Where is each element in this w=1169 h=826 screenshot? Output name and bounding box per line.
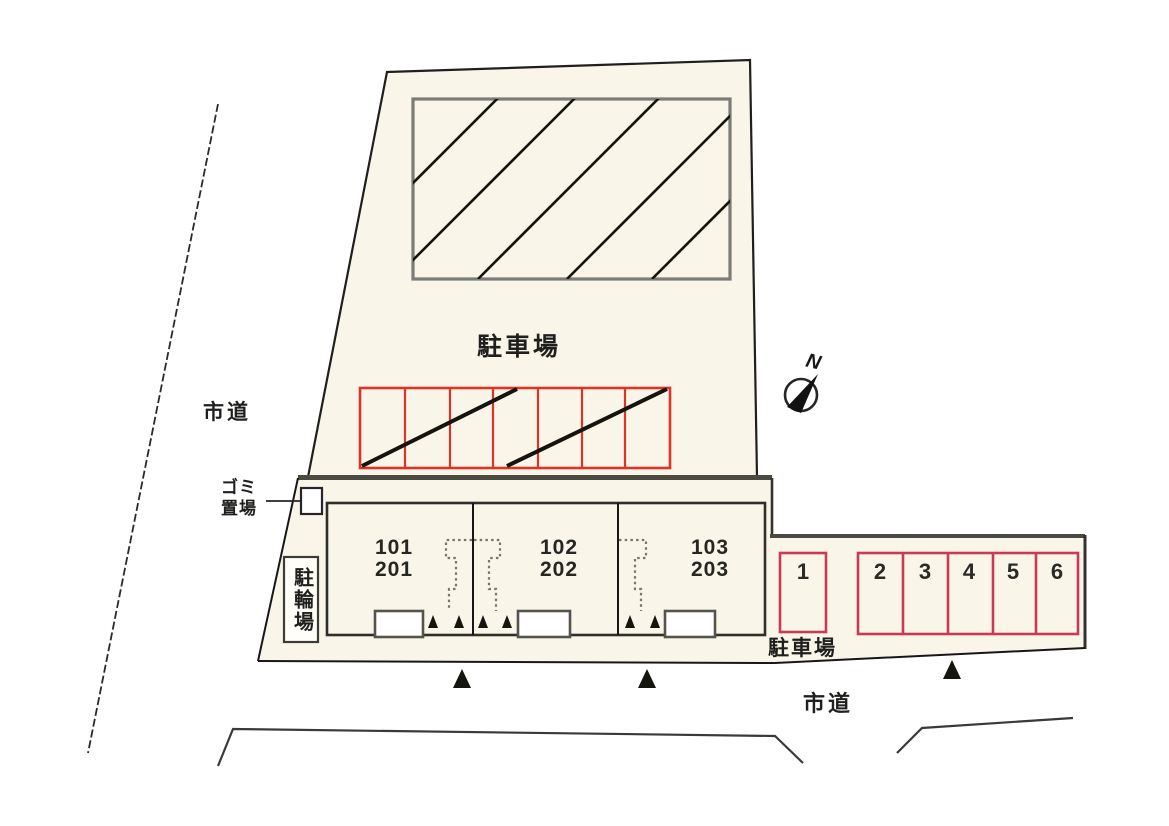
unit-201: 201 bbox=[375, 558, 413, 581]
unit-102: 102 bbox=[540, 536, 578, 559]
bottom-road-line-right bbox=[897, 718, 1073, 753]
north-compass-icon bbox=[785, 374, 818, 413]
parking-space-number-4: 4 bbox=[953, 559, 985, 585]
unit-label-102-202: 102202 bbox=[527, 537, 591, 581]
parking-space-number-2: 2 bbox=[864, 559, 896, 585]
road-label-left: 市道 bbox=[203, 402, 251, 424]
upper-lot-label: 駐車場 bbox=[477, 334, 561, 360]
unit-label-103-203: 103203 bbox=[678, 537, 742, 581]
bottom-road-line-left bbox=[218, 729, 803, 766]
trash-area-label: ゴミ置場 bbox=[221, 477, 257, 519]
hatched-area bbox=[413, 99, 730, 279]
left-road-line bbox=[88, 104, 218, 753]
parking-space-number-5: 5 bbox=[997, 559, 1029, 585]
bicycle-area-label: 駐輪場 bbox=[284, 557, 318, 642]
parking-space-number-6: 6 bbox=[1041, 559, 1073, 585]
parking-space-number-3: 3 bbox=[909, 559, 941, 585]
unit-103: 103 bbox=[691, 536, 729, 559]
trash-label-line2: 置場 bbox=[221, 499, 257, 518]
unit-202: 202 bbox=[540, 558, 578, 581]
road-label-bottom: 市道 bbox=[803, 692, 853, 715]
trash-label-line1: ゴミ bbox=[221, 478, 257, 497]
site-plan-canvas: 市道 駐車場 ゴミ置場 駐輪場 101201 102202 103203 1 2… bbox=[0, 0, 1169, 826]
parking-space-number-1: 1 bbox=[787, 559, 819, 585]
site-entrance-marker-icon bbox=[453, 660, 961, 688]
unit-101: 101 bbox=[375, 536, 413, 559]
unit-label-101-201: 101201 bbox=[362, 537, 426, 581]
trash-area-box bbox=[301, 488, 322, 514]
site-plan-drawing bbox=[0, 0, 1169, 826]
unit-203: 203 bbox=[691, 558, 729, 581]
right-lot-label: 駐車場 bbox=[768, 638, 837, 660]
